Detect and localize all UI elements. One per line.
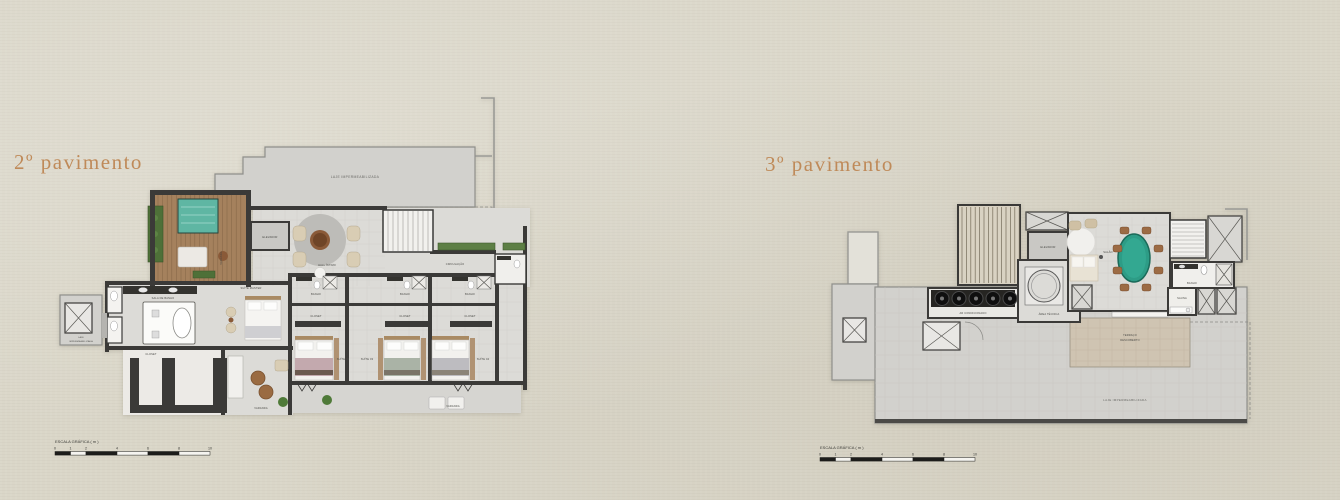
laje-right-label: LAJE IMPERMEABILIZADA <box>1103 398 1147 402</box>
tick: 8 <box>178 447 180 451</box>
banho-04-label: BANHO <box>465 292 475 296</box>
tick: 2 <box>85 447 87 451</box>
scale-bar-left-label: ESCALA GRÁFICA ( m ) <box>55 439 99 444</box>
salao: SALÃO <box>1067 213 1170 317</box>
tick: 1 <box>70 447 72 451</box>
left-floor-plan: LAJE IMPERMEABILIZADA VARANDA <box>55 88 535 433</box>
suite-03-label: SUÍTE 03 <box>361 357 374 361</box>
suite-beds: SUÍTE 02 SUÍTE 03 SUÍTE 04 <box>295 336 490 380</box>
salao-rug <box>1067 228 1095 256</box>
stairs-left <box>383 210 433 252</box>
dining-chair <box>1142 284 1151 291</box>
terraco-label-1: TERRAÇO <box>1123 333 1137 337</box>
tick: 6 <box>912 453 914 457</box>
tick: 8 <box>943 453 945 457</box>
hall-intimo-label: HALL ÍNTIMO <box>318 263 336 267</box>
ar-condicionado-label: AR CONDICIONADO <box>959 311 986 315</box>
tick: 10 <box>973 453 977 457</box>
banho-vanity <box>1174 264 1198 269</box>
right-plan-title: 3º pavimento <box>765 152 894 177</box>
tick: 2 <box>850 453 852 457</box>
varanda-pouf <box>251 371 265 385</box>
planter-right <box>503 243 525 250</box>
sauna-label: SAUNA <box>1177 296 1187 300</box>
tick: 4 <box>881 453 883 457</box>
sauna: SAUNA <box>1168 288 1196 315</box>
master-chair <box>226 323 236 333</box>
deck-lounger <box>178 247 207 267</box>
tick: 0 <box>819 453 821 457</box>
hall-armchair <box>347 252 360 267</box>
varanda-lounger <box>429 397 445 409</box>
laje-side-label-2: IMPERMEABILIZADA <box>69 340 93 343</box>
elevator-left-label: ELEVADOR <box>262 235 277 239</box>
varanda-chair <box>275 360 288 371</box>
tick: 0 <box>54 447 56 451</box>
salao-armchair <box>1085 219 1097 228</box>
roof-slab: LAJE IMPERMEABILIZADA <box>215 147 475 207</box>
varanda-plant <box>322 395 332 405</box>
scale-bar-right: ESCALA GRÁFICA ( m ) 0 1 2 4 6 8 10 <box>818 442 980 464</box>
scale-bar-left: ESCALA GRÁFICA ( m ) 0 1 2 4 6 8 10 <box>53 436 215 458</box>
elevator-right: ELEVADOR <box>1026 212 1068 260</box>
master-headboard <box>245 296 281 300</box>
scale-bar-right-label: ESCALA GRÁFICA ( m ) <box>820 445 864 450</box>
banho-right: BANHO <box>1172 262 1234 288</box>
banho-02-label: BANHO <box>311 292 321 296</box>
tick: 6 <box>147 447 149 451</box>
hall-armchair <box>293 252 306 267</box>
salao-armchair <box>1069 221 1081 230</box>
floor-lamp <box>1099 255 1103 259</box>
bathtub <box>173 308 191 338</box>
sala-de-banho-label: SALA DE BANHO <box>152 296 175 300</box>
terraco-descoberto: TERRAÇO DESCOBERTO <box>1070 318 1190 367</box>
bath-vanity <box>123 286 197 294</box>
laje-side-box: LAJE IMPERMEABILIZADA <box>60 295 107 345</box>
master-chair <box>226 307 236 317</box>
banho-toilet <box>1201 266 1207 275</box>
varanda-plant <box>278 397 288 407</box>
right-floor-plan: LAJE IMPERMEABILIZADA TERRAÇO DESCOBERTO <box>820 195 1280 435</box>
dining-chair <box>1154 245 1163 252</box>
dining-chair <box>1120 284 1129 291</box>
hall-armchair <box>347 226 360 241</box>
elevator-right-label: ELEVADOR <box>1040 245 1055 249</box>
varanda-master-label: VARANDA <box>254 406 268 410</box>
banho-03-label: BANHO <box>400 292 410 296</box>
tick: 4 <box>116 447 118 451</box>
varanda-suites-label: VARANDA <box>446 404 460 408</box>
elevator-left: ELEVADOR <box>251 222 289 250</box>
hall-armchair <box>293 226 306 241</box>
pool <box>178 199 218 233</box>
dining-chair <box>1120 227 1129 234</box>
banho-right-label: BANHO <box>1187 281 1197 285</box>
closet-04-label: CLOSET <box>464 314 476 318</box>
tick: 10 <box>208 447 212 451</box>
varanda-pouf <box>259 385 273 399</box>
terraco-label-2: DESCOBERTO <box>1120 338 1140 342</box>
suite-04-label: SUÍTE 04 <box>477 357 490 361</box>
dining-chair <box>1154 267 1163 274</box>
floor-plans-page: 2º pavimento 3º pavimento LAJE IMPERMEAB… <box>0 0 1340 500</box>
suite-master-label: SUÍTE MASTER <box>241 286 262 290</box>
closet-03-label: CLOSET <box>399 314 411 318</box>
dining-chair <box>1113 267 1122 274</box>
varanda-pool-label: VARANDA <box>219 251 223 265</box>
dining-chair <box>1113 245 1122 252</box>
closet-master-label: CLOSET <box>145 352 157 356</box>
closet-02-label: CLOSET <box>310 314 322 318</box>
suite-02-label: SUÍTE 02 <box>337 357 350 361</box>
banho-corridor <box>495 254 526 284</box>
dining-chair <box>1142 227 1151 234</box>
salao-bench <box>1112 312 1168 317</box>
varanda-sofa <box>228 356 243 398</box>
laje-side-label-1: LAJE <box>78 336 84 339</box>
stairs-right <box>1170 220 1206 258</box>
planter-corridor <box>438 243 495 250</box>
roof-slab-label: LAJE IMPERMEABILIZADA <box>331 175 380 179</box>
pergola <box>958 205 1020 285</box>
planter-master <box>193 271 215 278</box>
tick: 1 <box>835 453 837 457</box>
